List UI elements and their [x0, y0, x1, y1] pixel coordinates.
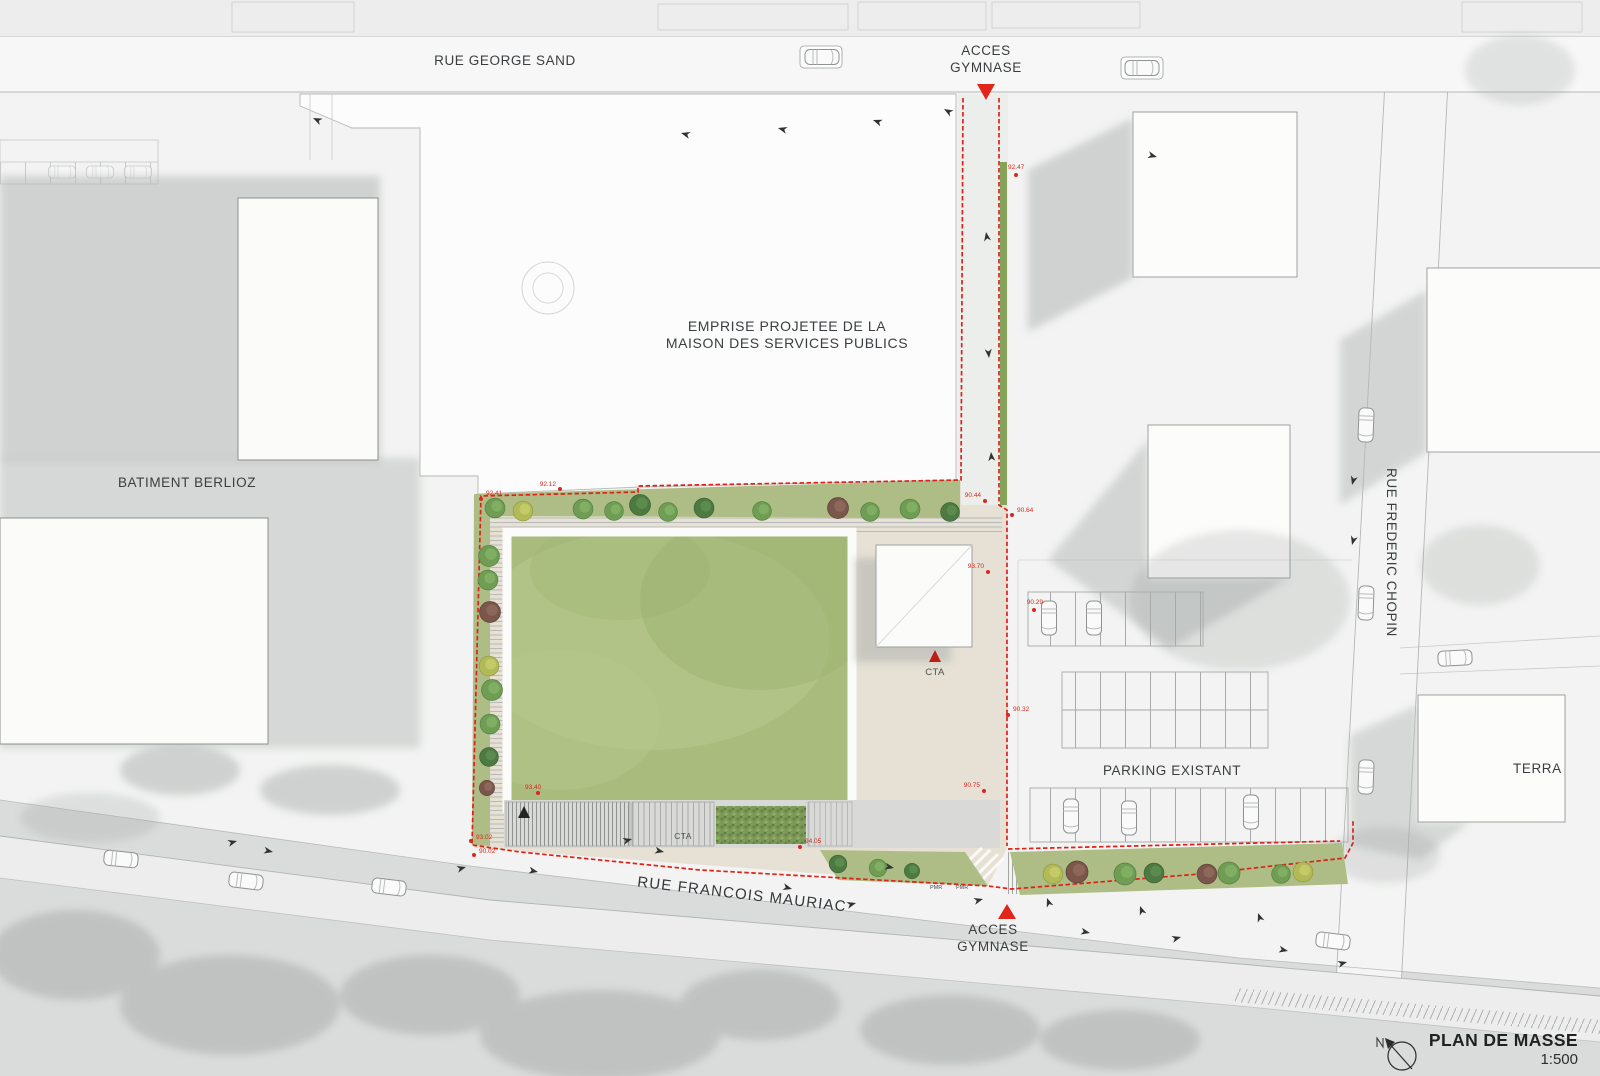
site-plan-canvas: 92.47 90.44 92.12 92.41 93.70 90.64 90.2… — [0, 0, 1600, 1076]
svg-text:93.70: 93.70 — [968, 563, 985, 570]
svg-text:90.32: 90.32 — [1013, 706, 1030, 713]
site-plan-drawing: 92.47 90.44 92.12 92.41 93.70 90.64 90.2… — [0, 0, 1600, 1076]
svg-text:92.12: 92.12 — [540, 481, 557, 488]
street-label-george-sand: RUE GEORGE SAND — [380, 52, 630, 69]
access-corridor — [958, 94, 1008, 506]
plan-scale: 1:500 — [1198, 1050, 1578, 1069]
terrain-label-partial: TERRA — [1513, 760, 1600, 777]
sports-field — [460, 510, 880, 812]
cta-strip-label: CTA — [669, 828, 697, 845]
pmr-label-b: PMR — [956, 880, 968, 897]
access-gymnase-label-top: ACCES GYMNASE — [916, 42, 1056, 76]
corridor-hedge — [1000, 162, 1007, 505]
emprise-label: EMPRISE PROJETEE DE LA MAISON DES SERVIC… — [637, 318, 937, 352]
building-berlioz — [0, 176, 420, 748]
pmr-label-a: PMR — [930, 880, 942, 897]
street-label-frederic-chopin: RUE FREDERIC CHOPIN — [1383, 468, 1400, 637]
svg-text:90.02: 90.02 — [479, 848, 496, 855]
svg-text:90.75: 90.75 — [964, 782, 981, 789]
svg-text:92.47: 92.47 — [1008, 164, 1025, 171]
access-gymnase-label-bottom: ACCES GYMNASE — [923, 921, 1063, 955]
svg-text:90.64: 90.64 — [1017, 507, 1034, 514]
title-block: PLAN DE MASSE 1:500 — [1198, 1030, 1578, 1069]
svg-text:94.05: 94.05 — [805, 838, 822, 845]
street-george-sand — [0, 0, 1600, 92]
plan-title: PLAN DE MASSE — [1198, 1030, 1578, 1050]
batiment-berlioz-label: BATIMENT BERLIOZ — [77, 474, 297, 491]
cta-building-label: CTA — [920, 664, 950, 681]
cta-building — [855, 545, 972, 662]
hedge-strip — [716, 806, 806, 844]
svg-text:90.29: 90.29 — [1027, 599, 1044, 606]
svg-text:92.41: 92.41 — [486, 490, 503, 497]
parking-existant-label: PARKING EXISTANT — [1077, 762, 1267, 779]
svg-text:93.40: 93.40 — [525, 784, 542, 791]
svg-text:90.44: 90.44 — [965, 492, 982, 499]
svg-text:93.02: 93.02 — [476, 834, 493, 841]
